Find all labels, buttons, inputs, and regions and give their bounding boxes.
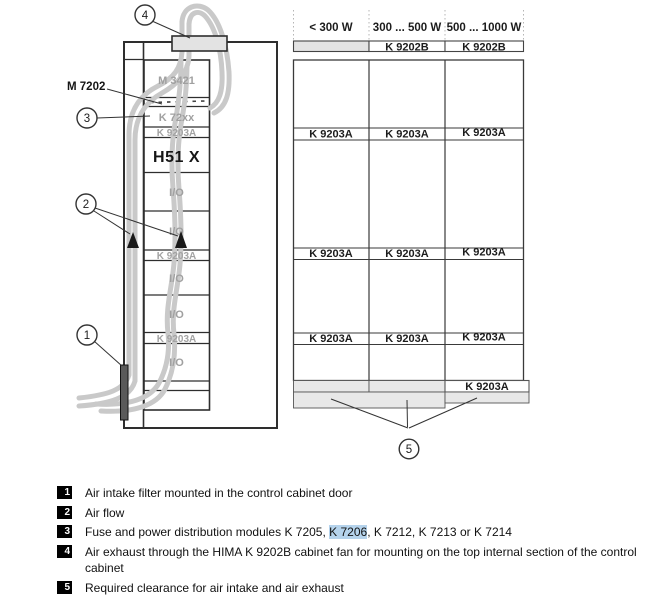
top-fan-cell-2-label: K 9202B bbox=[385, 42, 428, 54]
module-k9203a-label-2: K 9203A bbox=[157, 251, 196, 262]
clearance-cell-1 bbox=[294, 381, 370, 393]
clearance-strip-right bbox=[445, 392, 529, 403]
legend-text-3-pre: Fuse and power distribution modules K 72… bbox=[85, 525, 329, 539]
legend-item-4: 4 Air exhaust through the HIMA K 9202B c… bbox=[57, 544, 657, 577]
fan-row-3-cell-1: K 9203A bbox=[309, 333, 352, 345]
callout-2: 2 bbox=[76, 194, 96, 214]
legend-text-3-post: , K 7212, K 7213 or K 7214 bbox=[367, 525, 512, 539]
fan-row-2-cell-2: K 9203A bbox=[385, 248, 428, 260]
col-header-3: 500 ... 1000 W bbox=[447, 22, 522, 34]
legend-marker-4: 4 bbox=[57, 545, 72, 558]
callout-3-number: 3 bbox=[84, 113, 90, 125]
legend: 1 Air intake filter mounted in the contr… bbox=[57, 485, 657, 599]
legend-item-2: 2 Air flow bbox=[57, 505, 657, 522]
fan-row-1-cell-2: K 9203A bbox=[385, 129, 428, 141]
module-m3421-label: M 3421 bbox=[158, 75, 195, 87]
legend-text-1: Air intake filter mounted in the control… bbox=[85, 485, 352, 502]
col-header-1: < 300 W bbox=[309, 22, 352, 34]
fan-row-3-cell-3: K 9203A bbox=[462, 332, 505, 344]
fan-row-2-cell-3: K 9203A bbox=[462, 247, 505, 259]
callout-1-number: 1 bbox=[84, 330, 90, 342]
exhaust-fan bbox=[172, 36, 227, 51]
top-fan-cell-3-label: K 9202B bbox=[462, 42, 505, 54]
legend-marker-5: 5 bbox=[57, 581, 72, 594]
figure-page: M 3421 K 72xx K 9203A H51 X I/O I/O K 92… bbox=[0, 0, 666, 603]
clearance-strip-left bbox=[294, 392, 446, 408]
fan-row-3-cell-2: K 9203A bbox=[385, 333, 428, 345]
bottom-fan-cell-3-label: K 9203A bbox=[465, 381, 508, 393]
module-h51x-label: H51 X bbox=[153, 149, 200, 166]
ventilation-diagram: M 3421 K 72xx K 9203A H51 X I/O I/O K 92… bbox=[0, 0, 666, 478]
legend-marker-3: 3 bbox=[57, 525, 72, 538]
legend-item-3: 3 Fuse and power distribution modules K … bbox=[57, 524, 657, 541]
col-header-2: 300 ... 500 W bbox=[373, 22, 442, 34]
callout-4-number: 4 bbox=[142, 10, 149, 22]
fan-row-1-cell-3: K 9203A bbox=[462, 127, 505, 139]
callout-1: 1 bbox=[77, 325, 97, 345]
callout-3: 3 bbox=[77, 108, 97, 128]
callout-5-number: 5 bbox=[406, 444, 412, 456]
legend-text-4: Air exhaust through the HIMA K 9202B cab… bbox=[85, 544, 641, 577]
fan-row-2-cell-1: K 9203A bbox=[309, 248, 352, 260]
legend-text-3-highlight: K 7206 bbox=[329, 525, 367, 539]
clearance-cell-2 bbox=[369, 381, 445, 393]
module-k72xx-label: K 72xx bbox=[159, 112, 195, 124]
module-io-label-4: I/O bbox=[169, 309, 184, 321]
module-k9203a-label-3: K 9203A bbox=[157, 334, 196, 345]
control-cabinet: M 3421 K 72xx K 9203A H51 X I/O I/O K 92… bbox=[79, 6, 277, 428]
fan-row-1-cell-1: K 9203A bbox=[309, 129, 352, 141]
legend-item-1: 1 Air intake filter mounted in the contr… bbox=[57, 485, 657, 502]
legend-text-2: Air flow bbox=[85, 505, 124, 522]
callout-2-number: 2 bbox=[83, 199, 89, 211]
air-intake-filter bbox=[121, 365, 129, 420]
legend-text-3: Fuse and power distribution modules K 72… bbox=[85, 524, 512, 541]
module-io-label-1: I/O bbox=[169, 187, 184, 199]
top-fan-cell-1 bbox=[294, 41, 370, 52]
module-io-label-5: I/O bbox=[169, 357, 184, 369]
callout-4: 4 bbox=[135, 5, 155, 25]
clearance-zone: K 9203A bbox=[294, 381, 530, 409]
legend-marker-1: 1 bbox=[57, 486, 72, 499]
legend-text-5: Required clearance for air intake and ai… bbox=[85, 580, 344, 597]
legend-item-5: 5 Required clearance for air intake and … bbox=[57, 580, 657, 597]
fan-selection-table: < 300 W 300 ... 500 W 500 ... 1000 W K 9… bbox=[294, 10, 530, 459]
legend-marker-2: 2 bbox=[57, 506, 72, 519]
m7202-external-label: M 7202 bbox=[67, 81, 105, 93]
module-io-label-3: I/O bbox=[169, 273, 184, 285]
module-k9203a-label-1: K 9203A bbox=[157, 128, 196, 139]
